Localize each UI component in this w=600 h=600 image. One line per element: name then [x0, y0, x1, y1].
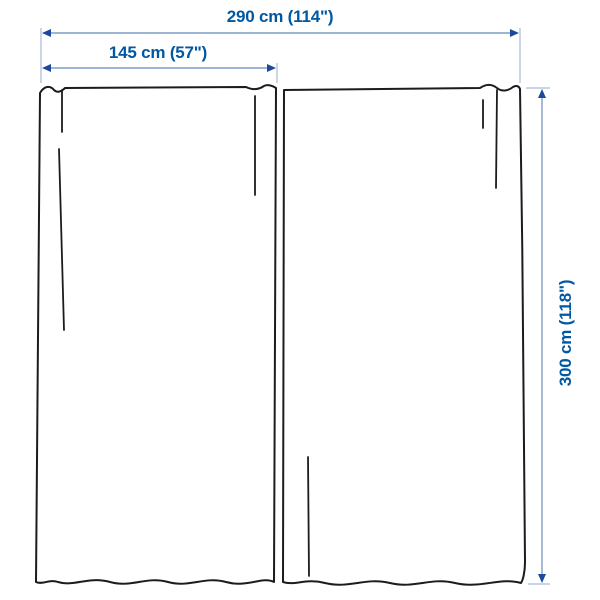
panel-width-label: 145 cm (57") — [58, 43, 258, 63]
curtain-panel-left-outline — [36, 85, 276, 584]
curtain-right-fold-line-2 — [496, 90, 497, 188]
panel-width-arrow-left-icon — [42, 64, 51, 72]
dimension-height — [538, 89, 546, 583]
panel-width-arrow-right-icon — [267, 64, 276, 72]
height-label: 300 cm (118") — [555, 263, 577, 403]
total-width-arrow-left-icon — [42, 29, 51, 37]
curtain-left-fold-line-2 — [59, 149, 64, 330]
curtain-panel-right-outline — [283, 85, 525, 585]
dimension-extension-lines — [41, 28, 550, 584]
height-arrow-down-icon — [538, 574, 546, 583]
curtain-panel-right — [283, 85, 525, 585]
total-width-label: 290 cm (114") — [180, 7, 380, 27]
diagram-canvas — [0, 0, 600, 600]
dimension-panel-width — [42, 64, 276, 72]
dimension-total-width — [42, 29, 519, 37]
curtain-panel-left — [36, 85, 276, 584]
curtain-dimension-diagram: 290 cm (114") 145 cm (57") 300 cm (118") — [0, 0, 600, 600]
curtain-right-fold-line-3 — [308, 457, 309, 576]
total-width-arrow-right-icon — [510, 29, 519, 37]
height-arrow-up-icon — [538, 89, 546, 98]
